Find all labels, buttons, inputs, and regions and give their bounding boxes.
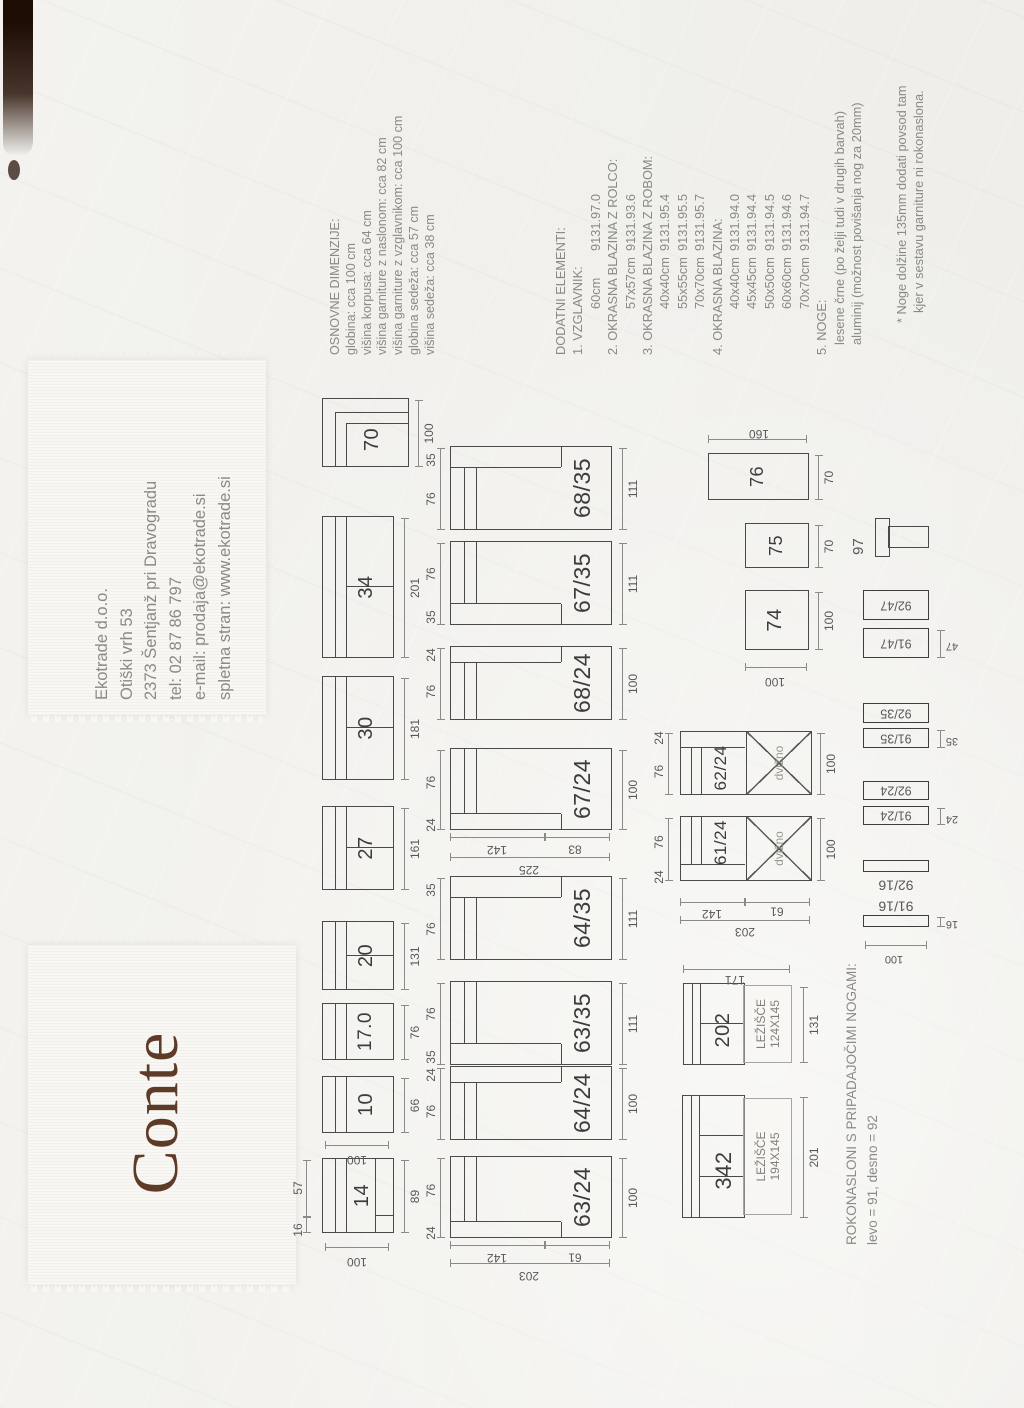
armrest-91-35-bar: 91/35 xyxy=(863,728,929,748)
item-size: 50x50cm xyxy=(761,251,778,309)
dim-label: 66 xyxy=(408,1078,422,1133)
element-75-drawing: 75 xyxy=(745,523,809,568)
dim-line xyxy=(940,917,941,927)
pinked-edge xyxy=(31,715,263,722)
item-code: 9131.94.6 xyxy=(779,194,794,251)
dimension-line: višina garniture z naslonom: cca 82 cm xyxy=(375,116,391,355)
bed-label: LEŽIŠČE xyxy=(754,1132,768,1182)
dim-label: 181 xyxy=(408,678,422,780)
armrest-note-line: ROKONASLONI S PRIPADAJOČIMI NOGAMI: xyxy=(841,963,862,1245)
additional-elements-heading: DODATNI ELEMENTI: xyxy=(552,102,569,355)
dim-line xyxy=(622,878,623,960)
element-68-24-drawing: 68/24 xyxy=(450,646,612,720)
backrest-line xyxy=(335,517,336,657)
backrest-line xyxy=(464,1157,465,1222)
dim-label: 76 xyxy=(652,748,666,795)
backrest-line xyxy=(346,807,347,889)
dim-label: 76 xyxy=(424,1083,438,1140)
element-64-35-drawing: 64/35 xyxy=(450,876,612,960)
backrest-line xyxy=(464,982,465,1044)
backrest-line xyxy=(335,413,336,466)
dim-label: 70 xyxy=(822,525,836,568)
element-id: 64/35 xyxy=(569,877,596,959)
company-street: Otiški vrh 53 xyxy=(115,476,140,700)
dim-label: 100 xyxy=(765,675,785,689)
dim-label: 100 xyxy=(822,592,836,650)
backrest-line xyxy=(464,897,465,959)
armrest-92-24-bar: 92/24 xyxy=(863,781,929,800)
rotated-page-content: Conte Ekotrade d.o.o. Otiški vrh 53 2373… xyxy=(0,0,1024,1408)
backrest-line xyxy=(346,517,347,657)
backrest-line xyxy=(476,542,477,604)
dim-label: 24 xyxy=(946,813,958,825)
armrest-cap xyxy=(561,877,562,897)
bed-size: 194X145 xyxy=(768,1132,782,1180)
backrest-line xyxy=(701,747,702,794)
dim-label: 100 xyxy=(626,648,640,720)
list-item: 40x40cm9131.95.4 xyxy=(656,102,673,355)
armrest-note-block: ROKONASLONI S PRIPADAJOČIMI NOGAMI: levo… xyxy=(841,963,883,1245)
element-27-drawing: 27 xyxy=(322,806,394,890)
dim-label: 70 xyxy=(822,455,836,500)
armrest-cap xyxy=(561,1067,562,1082)
dim-label: 100 xyxy=(347,1255,367,1269)
backrest-line xyxy=(699,1096,700,1217)
element-id: 63/35 xyxy=(569,982,596,1064)
bed-surface-342: LEŽIŠČE 194X145 xyxy=(743,1098,792,1215)
element-id: 63/24 xyxy=(569,1157,596,1237)
element-id: 342 xyxy=(711,1096,737,1245)
dim-line xyxy=(803,1097,804,1218)
dim-label: 35 xyxy=(946,735,958,747)
dim-label: 142 xyxy=(487,1251,507,1265)
element-id: 70 xyxy=(361,399,384,480)
list-item-heading: 1. VZGLAVNIK: xyxy=(569,102,586,355)
dim-line xyxy=(440,1158,441,1238)
lift-storage-box: dvižno xyxy=(746,817,811,880)
dim-line xyxy=(622,750,623,830)
bed-surface-202: LEŽIŠČE 124X145 xyxy=(743,985,792,1063)
element-70-corner-drawing: 70 xyxy=(322,398,409,467)
dim-line xyxy=(668,818,669,881)
list-item: 40x40cm9131.94.0 xyxy=(726,102,743,355)
item-size: 45x45cm xyxy=(743,251,760,309)
backrest-line xyxy=(691,817,692,865)
dim-line xyxy=(404,1078,405,1133)
dim-label: 100 xyxy=(626,750,640,830)
dim-line xyxy=(622,448,623,530)
backrest-line xyxy=(476,1157,477,1222)
backrest-line xyxy=(700,984,701,1064)
list-item: 60cm9131.97.0 xyxy=(587,102,604,355)
footnote-line: kjer v sestavu garniture ni rokonaslona. xyxy=(910,85,927,323)
backrest-line xyxy=(464,542,465,604)
element-76-drawing: 76 xyxy=(708,453,809,500)
item-size: 57x57cm xyxy=(622,251,639,309)
list-item: 70x70cm9131.95.7 xyxy=(691,102,708,355)
dim-label: 100 xyxy=(824,733,838,795)
dim-label: 57 xyxy=(291,1164,305,1212)
dim-line xyxy=(404,808,405,890)
pinked-edge xyxy=(31,1285,293,1292)
list-item: 50x50cm9131.94.5 xyxy=(761,102,778,355)
dim-line xyxy=(440,1068,441,1140)
dim-line xyxy=(440,448,441,530)
dim-label: 24 xyxy=(652,863,666,891)
item-code: 9131.95.5 xyxy=(675,194,690,251)
pinked-edge xyxy=(31,353,263,360)
dim-line xyxy=(680,920,810,921)
list-item: 55x55cm9131.95.5 xyxy=(674,102,691,355)
company-name: Ekotrade d.o.o. xyxy=(90,476,115,700)
dim-label: 171 xyxy=(725,973,745,987)
basic-dimensions-heading: OSNOVNE DIMENZIJE: xyxy=(328,116,344,355)
list-item-heading: 5. NOGE: xyxy=(813,102,830,355)
dim-line xyxy=(404,678,405,780)
bed-label: LEŽIŠČE xyxy=(754,999,768,1049)
backrest-line xyxy=(691,747,692,794)
dim-label: 76 xyxy=(424,983,438,1045)
dim-label: 131 xyxy=(408,923,422,990)
dim-label: 201 xyxy=(408,518,422,658)
dim-line xyxy=(325,1247,389,1248)
backrest-line xyxy=(464,749,465,814)
scan-shadow-artifact xyxy=(3,0,33,156)
element-id: 92/24 xyxy=(880,784,911,798)
element-id: 92/16 xyxy=(878,877,913,893)
armrest-91-16-bar xyxy=(863,915,929,927)
fabric-swatch-contact: Ekotrade d.o.o. Otiški vrh 53 2373 Šentj… xyxy=(28,360,266,715)
dim-line xyxy=(404,923,405,990)
dim-label: 131 xyxy=(807,987,821,1063)
dim-label: 142 xyxy=(702,907,722,921)
company-city: 2373 Šentjanž pri Dravogradu xyxy=(139,476,164,700)
dim-label: 47 xyxy=(946,640,958,652)
dim-line xyxy=(440,983,441,1065)
element-id: 92/47 xyxy=(880,598,911,612)
element-id: 76 xyxy=(747,454,768,499)
item-code: 9131.93.6 xyxy=(623,194,638,251)
dim-line xyxy=(622,1158,623,1238)
armrest-92-47-bar: 92/47 xyxy=(863,590,929,620)
backrest-line xyxy=(476,982,477,1044)
armrest-92-35-bar: 92/35 xyxy=(863,703,929,723)
item-code: 9131.97.0 xyxy=(588,194,603,251)
element-10-drawing: 10 xyxy=(322,1076,394,1133)
backrest-line xyxy=(691,1096,692,1217)
dim-label: 76 xyxy=(652,818,666,866)
backrest-line xyxy=(464,467,465,529)
armrest-line xyxy=(451,1082,561,1083)
armrest-line xyxy=(451,1221,561,1222)
leg-id-label: 97 xyxy=(850,538,867,555)
list-item-heading: 2. OKRASNA BLAZINA Z ROLCO: xyxy=(604,102,621,355)
dim-label: 76 xyxy=(424,543,438,605)
dim-line xyxy=(940,630,941,658)
scanned-catalog-page: Conte Ekotrade d.o.o. Otiški vrh 53 2373… xyxy=(0,0,1024,1408)
item-code: 9131.94.7 xyxy=(797,194,812,251)
backrest-line xyxy=(464,662,465,719)
company-email: e-mail: prodaja@ekotrade.si xyxy=(188,476,213,700)
front-strip-line xyxy=(375,1159,376,1232)
list-item-heading: 3. OKRASNA BLAZINA Z ROBOM: xyxy=(639,102,656,355)
element-id: 67/35 xyxy=(569,542,596,624)
dim-label: 203 xyxy=(519,1269,539,1283)
item-size: 60cm xyxy=(587,251,604,309)
dim-line xyxy=(683,969,790,970)
element-64-24-drawing: 64/24 xyxy=(450,1066,612,1140)
dim-line xyxy=(622,648,623,720)
item-code: 9131.95.7 xyxy=(692,194,707,251)
dim-label: 161 xyxy=(408,808,422,890)
pinked-edge xyxy=(31,938,293,945)
footnote-block: * Noge dolžine 135mm dodati povsod tam k… xyxy=(893,85,928,323)
dim-line xyxy=(680,902,745,903)
backrest-line xyxy=(335,922,336,989)
dim-label: 160 xyxy=(749,427,769,441)
backrest-line xyxy=(692,984,693,1064)
armrest-cap xyxy=(561,814,562,829)
item-size: 40x40cm xyxy=(656,251,673,309)
page-title: Conte xyxy=(118,948,194,1278)
element-id: 92/35 xyxy=(880,706,911,720)
armrest-line xyxy=(451,662,561,663)
company-phone: tel: 02 87 86 797 xyxy=(164,476,189,700)
dim-line xyxy=(450,857,610,858)
dim-line xyxy=(325,1145,389,1146)
bed-size: 124X145 xyxy=(768,1000,782,1048)
dim-line xyxy=(404,1005,405,1060)
list-item-heading: 4. OKRASNA BLAZINA: xyxy=(709,102,726,355)
dim-label: 203 xyxy=(735,925,755,939)
element-202-drawing: 202 xyxy=(683,983,745,1065)
dim-line xyxy=(440,543,441,625)
backrest-line xyxy=(335,1004,336,1059)
backrest-line xyxy=(335,1077,336,1132)
dim-label: 111 xyxy=(626,448,640,530)
element-id: 91/16 xyxy=(878,898,913,914)
dimension-line: globina sedeža: cca 57 cm xyxy=(407,116,423,355)
armrest-line xyxy=(451,897,561,898)
pinked-edge xyxy=(266,363,273,712)
element-30-drawing: 30 xyxy=(322,676,394,780)
element-342-drawing: 342 xyxy=(682,1095,745,1218)
dim-line xyxy=(745,902,810,903)
dim-line xyxy=(418,400,419,467)
dim-label: 100 xyxy=(626,1158,640,1238)
element-63-35-drawing: 63/35 xyxy=(450,981,612,1065)
backrest-line xyxy=(476,897,477,959)
dim-line xyxy=(622,543,623,625)
backrest-line xyxy=(346,1159,347,1232)
armrest-line xyxy=(451,813,561,814)
backrest-line xyxy=(346,677,347,779)
dim-line xyxy=(745,667,807,668)
dim-line xyxy=(865,945,927,946)
additional-elements-block: DODATNI ELEMENTI: 1. VZGLAVNIK: 60cm9131… xyxy=(552,102,865,355)
armrest-92-16-bar xyxy=(863,860,929,872)
list-item: 60x60cm9131.94.6 xyxy=(778,102,795,355)
dim-label: 111 xyxy=(626,983,640,1065)
dim-line xyxy=(545,1245,610,1246)
contact-block: Ekotrade d.o.o. Otiški vrh 53 2373 Šentj… xyxy=(90,476,238,700)
element-67-24-drawing: 67/24 xyxy=(450,748,612,830)
dim-line xyxy=(668,733,669,795)
element-id: 67/24 xyxy=(569,749,596,829)
armrest-line xyxy=(451,603,561,604)
dim-label: 35 xyxy=(424,442,438,478)
list-item: lesene črne (po želji tudi v drugih barv… xyxy=(831,102,848,355)
backrest-line xyxy=(476,662,477,719)
item-size: 55x55cm xyxy=(674,251,691,309)
element-id: 10 xyxy=(355,1077,378,1132)
dimension-line: višina garniture z vzglavnikom: cca 100 … xyxy=(391,116,407,355)
footnote-line: * Noge dolžine 135mm dodati povsod tam xyxy=(893,85,910,323)
element-id: 68/24 xyxy=(569,647,596,719)
dim-label: 16 xyxy=(946,918,958,930)
list-item: aluminij (možnost povišanja nog za 20mm) xyxy=(848,102,865,355)
dim-line xyxy=(404,1160,405,1233)
item-size: 40x40cm xyxy=(726,251,743,309)
dim-label: 24 xyxy=(652,724,666,752)
armrest-cap xyxy=(561,447,562,467)
dim-label: 225 xyxy=(519,863,539,877)
armrest-cap xyxy=(561,1222,562,1237)
backrest-line xyxy=(346,1077,347,1132)
element-67-35-drawing: 67/35 xyxy=(450,541,612,625)
dim-line xyxy=(818,592,819,650)
dim-line xyxy=(450,837,545,838)
element-34-drawing: 34 xyxy=(322,516,394,658)
dim-label: 76 xyxy=(424,1158,438,1223)
dim-label: 61 xyxy=(568,1250,581,1264)
element-id: 34 xyxy=(355,517,378,657)
armrest-line xyxy=(451,1043,561,1044)
backrest-line xyxy=(346,1004,347,1059)
armrest-line xyxy=(451,467,561,468)
dim-label: 100 xyxy=(347,1153,367,1167)
dim-line xyxy=(820,733,821,795)
element-id: 64/24 xyxy=(569,1067,596,1139)
dim-label: 61 xyxy=(770,904,783,918)
item-code: 9131.94.4 xyxy=(744,194,759,251)
armrest-cap xyxy=(561,604,562,624)
dim-label: 24 xyxy=(424,640,438,670)
list-item: 70x70cm9131.94.7 xyxy=(796,102,813,355)
list-item: 57x57cm9131.93.6 xyxy=(622,102,639,355)
dim-line xyxy=(622,1068,623,1140)
dim-line xyxy=(450,1245,545,1246)
dim-label: 100 xyxy=(626,1068,640,1140)
dim-line xyxy=(818,525,819,568)
dim-line xyxy=(306,1160,307,1217)
backrest-line xyxy=(701,817,702,865)
item-code: 9131.94.5 xyxy=(762,194,777,251)
dim-line xyxy=(440,648,441,720)
element-20-drawing: 20 xyxy=(322,921,394,990)
armrest-cap xyxy=(561,1044,562,1064)
basic-dimensions-block: OSNOVNE DIMENZIJE: globina: cca 100 cm v… xyxy=(328,116,439,355)
dim-line xyxy=(818,455,819,500)
element-id: 30 xyxy=(355,677,378,779)
backrest-line xyxy=(476,1082,477,1139)
item-size: 60x60cm xyxy=(778,251,795,309)
list-item: 45x45cm9131.94.4 xyxy=(743,102,760,355)
element-62-24-drawing: dvižno 62/24 xyxy=(680,731,812,795)
backrest-line xyxy=(476,467,477,529)
dim-line xyxy=(306,1217,307,1233)
element-id: 68/35 xyxy=(569,447,596,529)
backrest-line xyxy=(335,1159,336,1232)
element-id: 91/35 xyxy=(880,731,911,745)
element-17-drawing: 17.0 xyxy=(322,1003,394,1060)
armrest-note-line: levo = 91, desno = 92 xyxy=(862,963,883,1245)
dim-line xyxy=(545,837,610,838)
dim-label: 201 xyxy=(807,1097,821,1218)
element-id: 17.0 xyxy=(355,1004,377,1059)
dim-label: 35 xyxy=(424,872,438,908)
lift-label: dvižno xyxy=(772,831,786,866)
lift-label: dvižno xyxy=(772,746,786,781)
dimension-line: višina sedeža: cca 38 cm xyxy=(423,116,439,355)
dim-label: 76 xyxy=(424,750,438,815)
element-14-drawing: 14 xyxy=(322,1158,394,1233)
dim-label: 83 xyxy=(568,842,581,856)
dim-label: 142 xyxy=(487,843,507,857)
dim-line xyxy=(622,983,623,1065)
element-74-drawing: 74 xyxy=(745,590,809,650)
dim-line xyxy=(940,730,941,748)
dim-line xyxy=(803,987,804,1063)
dimension-line: globina: cca 100 cm xyxy=(344,116,360,355)
item-code: 9131.95.4 xyxy=(657,194,672,251)
element-id: 202 xyxy=(712,984,735,1076)
element-63-24-drawing: 63/24 xyxy=(450,1156,612,1238)
scan-shadow-artifact-small xyxy=(8,160,20,180)
dim-line xyxy=(940,808,941,825)
dimension-line: višina korpusa: cca 64 cm xyxy=(360,116,376,355)
dim-label: 100 xyxy=(885,953,903,965)
dim-label: 111 xyxy=(626,543,640,625)
lift-storage-box: dvižno xyxy=(746,732,811,794)
dim-label: 89 xyxy=(408,1160,422,1233)
dim-label: 100 xyxy=(824,818,838,881)
company-website: spletna stran: www.ekotrade.si xyxy=(213,476,238,700)
dim-label: 16 xyxy=(291,1217,305,1243)
item-size: 70x70cm xyxy=(691,251,708,309)
element-id: 91/24 xyxy=(880,809,911,823)
element-id: 74 xyxy=(764,591,787,649)
element-id: 27 xyxy=(355,807,378,889)
element-id: 62/24 xyxy=(711,732,731,804)
item-code: 9131.94.0 xyxy=(727,194,742,251)
dim-line xyxy=(820,818,821,881)
element-id: 61/24 xyxy=(711,817,731,868)
element-68-35-drawing: 68/35 xyxy=(450,446,612,530)
backrest-line xyxy=(335,677,336,779)
backrest-line xyxy=(464,1082,465,1139)
backrest-line xyxy=(335,807,336,889)
armrest-91-24-bar: 91/24 xyxy=(863,806,929,825)
armrest-91-47-bar: 91/47 xyxy=(863,628,929,658)
dim-line xyxy=(440,750,441,830)
dim-line xyxy=(440,878,441,960)
dim-line xyxy=(404,518,405,658)
armrest-cap xyxy=(561,647,562,662)
backrest-line xyxy=(346,424,347,466)
element-id: 14 xyxy=(351,1159,374,1232)
element-id: 75 xyxy=(766,524,787,567)
